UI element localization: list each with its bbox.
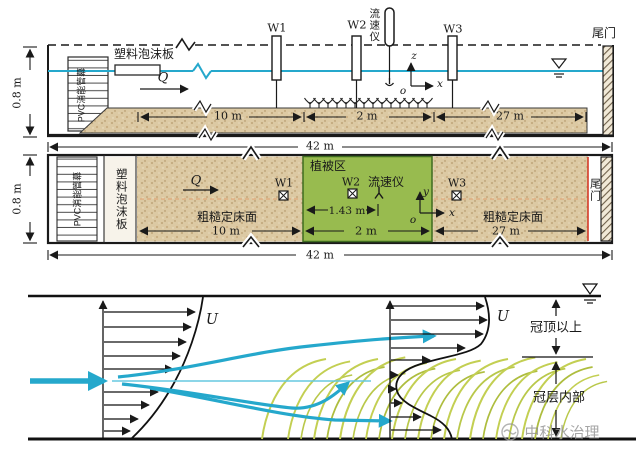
gauge-label-w2: W2 bbox=[347, 19, 366, 31]
plants-row bbox=[305, 98, 433, 108]
pvc-screen-label-plan: PVC消能管幕 bbox=[74, 172, 83, 227]
wave-gauge-w2 bbox=[352, 36, 361, 108]
velocity-label-canopy: U bbox=[497, 310, 509, 325]
wave-gauge-w1 bbox=[272, 36, 281, 108]
velocimeter-label-plan: 流速仪 bbox=[368, 176, 404, 188]
pvc-screen-label-top: PVC消能管幕 bbox=[78, 68, 87, 123]
flume-side-view bbox=[23, 8, 614, 152]
gauge-label-w3: W3 bbox=[443, 23, 462, 35]
velocimeter-label-top: 流速仪 bbox=[369, 8, 380, 43]
rough-bed-label-left: 粗糙定床面 bbox=[197, 211, 257, 223]
wave-gauge-w3 bbox=[448, 36, 457, 108]
dim-143m-plan: 1.43 m bbox=[329, 206, 366, 217]
axis-origin-label-plan: o bbox=[410, 215, 416, 226]
foam-board bbox=[115, 65, 160, 75]
dim-2m-top: 2 m bbox=[357, 111, 378, 122]
tailgate-hatch-plan bbox=[601, 157, 612, 241]
gauge-label-w3-plan: W3 bbox=[448, 178, 466, 189]
axis-x-label-plan: x bbox=[449, 208, 455, 219]
tailgate-label-top: 尾门 bbox=[592, 27, 616, 39]
dim-42m-plan: 42 m bbox=[306, 250, 334, 261]
watermark-text: 中科水治理 bbox=[524, 426, 599, 441]
axis-x-label-top: x bbox=[437, 79, 443, 90]
axes-zx bbox=[411, 63, 433, 86]
depth-dimension-plan bbox=[23, 155, 37, 243]
tailgate-label-plan: 尾门 bbox=[589, 178, 600, 202]
flume-experiment-figure: 0.8 m PVC消能管幕 塑料泡沫板 Q W1 W2 流速仪 W3 z o x… bbox=[0, 0, 640, 462]
depth-label-top: 0.8 m bbox=[12, 77, 23, 108]
dim-10m-top: 10 m bbox=[214, 111, 242, 122]
dim-10m-plan: 10 m bbox=[212, 226, 240, 237]
inside-canopy-label: 冠层内部 bbox=[533, 391, 585, 404]
water-surface-icon-profile bbox=[583, 284, 597, 303]
velocity-label-upstream: U bbox=[206, 313, 218, 328]
w2-marker bbox=[348, 189, 357, 198]
tailgate-hatch-top bbox=[603, 46, 613, 135]
discharge-label-plan: Q bbox=[191, 175, 202, 188]
dim-27m-top: 27 m bbox=[496, 111, 524, 122]
w1-marker bbox=[279, 191, 288, 200]
axis-z-label: z bbox=[411, 51, 417, 62]
dim-42m-top: 42 m bbox=[306, 141, 334, 152]
vegetation-zone-label: 植被区 bbox=[310, 160, 346, 172]
axis-y-label: y bbox=[423, 187, 429, 198]
velocimeter-icon bbox=[385, 8, 394, 86]
gauge-label-w2-plan: W2 bbox=[342, 177, 360, 188]
w3-marker bbox=[452, 191, 461, 200]
dim-27m-plan: 27 m bbox=[492, 226, 520, 237]
gauge-label-w1: W1 bbox=[267, 22, 286, 34]
canopy-blades bbox=[262, 357, 607, 462]
gauge-label-w1-plan: W1 bbox=[275, 178, 293, 189]
discharge-label-top: Q bbox=[158, 72, 169, 85]
dim-2m-plan: 2 m bbox=[355, 225, 377, 237]
foam-board-label-plan: 塑料泡沫板 bbox=[114, 168, 126, 231]
rough-bed-label-right: 粗糙定床面 bbox=[483, 211, 543, 223]
above-canopy-label: 冠顶以上 bbox=[530, 321, 582, 334]
foam-board-label-top: 塑料泡沫板 bbox=[114, 48, 174, 60]
depth-dimension-top bbox=[23, 47, 37, 137]
axis-origin-label-top: o bbox=[400, 86, 406, 97]
depth-label-plan: 0.8 m bbox=[12, 183, 23, 214]
water-surface-icon-top bbox=[552, 59, 566, 77]
